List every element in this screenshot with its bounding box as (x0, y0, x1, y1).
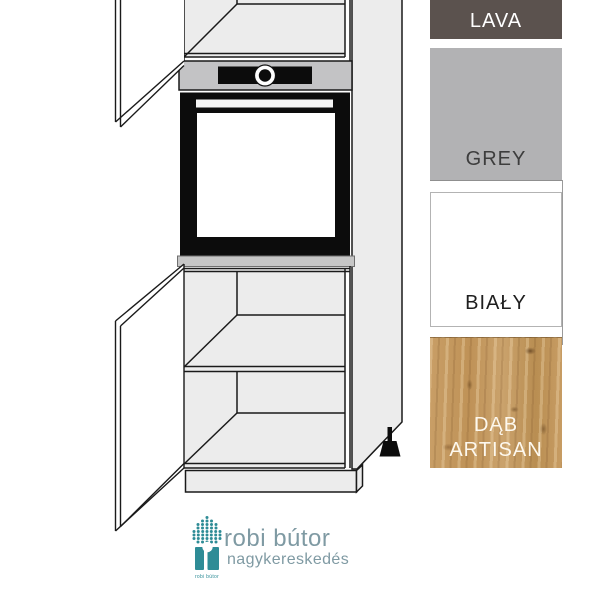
swatch-label: DĄB ARTISAN (440, 413, 552, 468)
swatch-label: GREY (466, 147, 527, 180)
upper-door (116, 0, 185, 127)
top-compartment (184, 0, 350, 61)
swatch-label: BIAŁY (465, 291, 527, 326)
swatch-label: LAVA (470, 5, 522, 34)
oven-window (197, 113, 335, 237)
oven-trim-strip (178, 256, 355, 267)
swatch-dab-artisan[interactable]: DĄB ARTISAN (430, 337, 562, 468)
cabinet-side-panel (352, 0, 402, 469)
tree-icon: robi bútor (188, 512, 228, 582)
oven-door (180, 93, 350, 257)
oven-handle (196, 100, 333, 108)
oven-control-panel (179, 61, 352, 90)
lower-door (116, 264, 185, 531)
logo-subtitle: nagykereskedés (227, 551, 349, 569)
swatch-bialy[interactable]: BIAŁY (430, 192, 562, 327)
swatch-grey[interactable]: GREY (430, 48, 562, 181)
swatch-frame-line (562, 180, 563, 345)
lower-compartment (183, 266, 350, 468)
logo-icon-caption: robi bútor (195, 574, 219, 580)
swatch-lava[interactable]: LAVA (430, 0, 562, 39)
logo-title: robi bútor (224, 525, 330, 553)
product-image: LAVA GREY BIAŁY DĄB ARTISAN (0, 0, 600, 600)
plinth (186, 465, 363, 492)
